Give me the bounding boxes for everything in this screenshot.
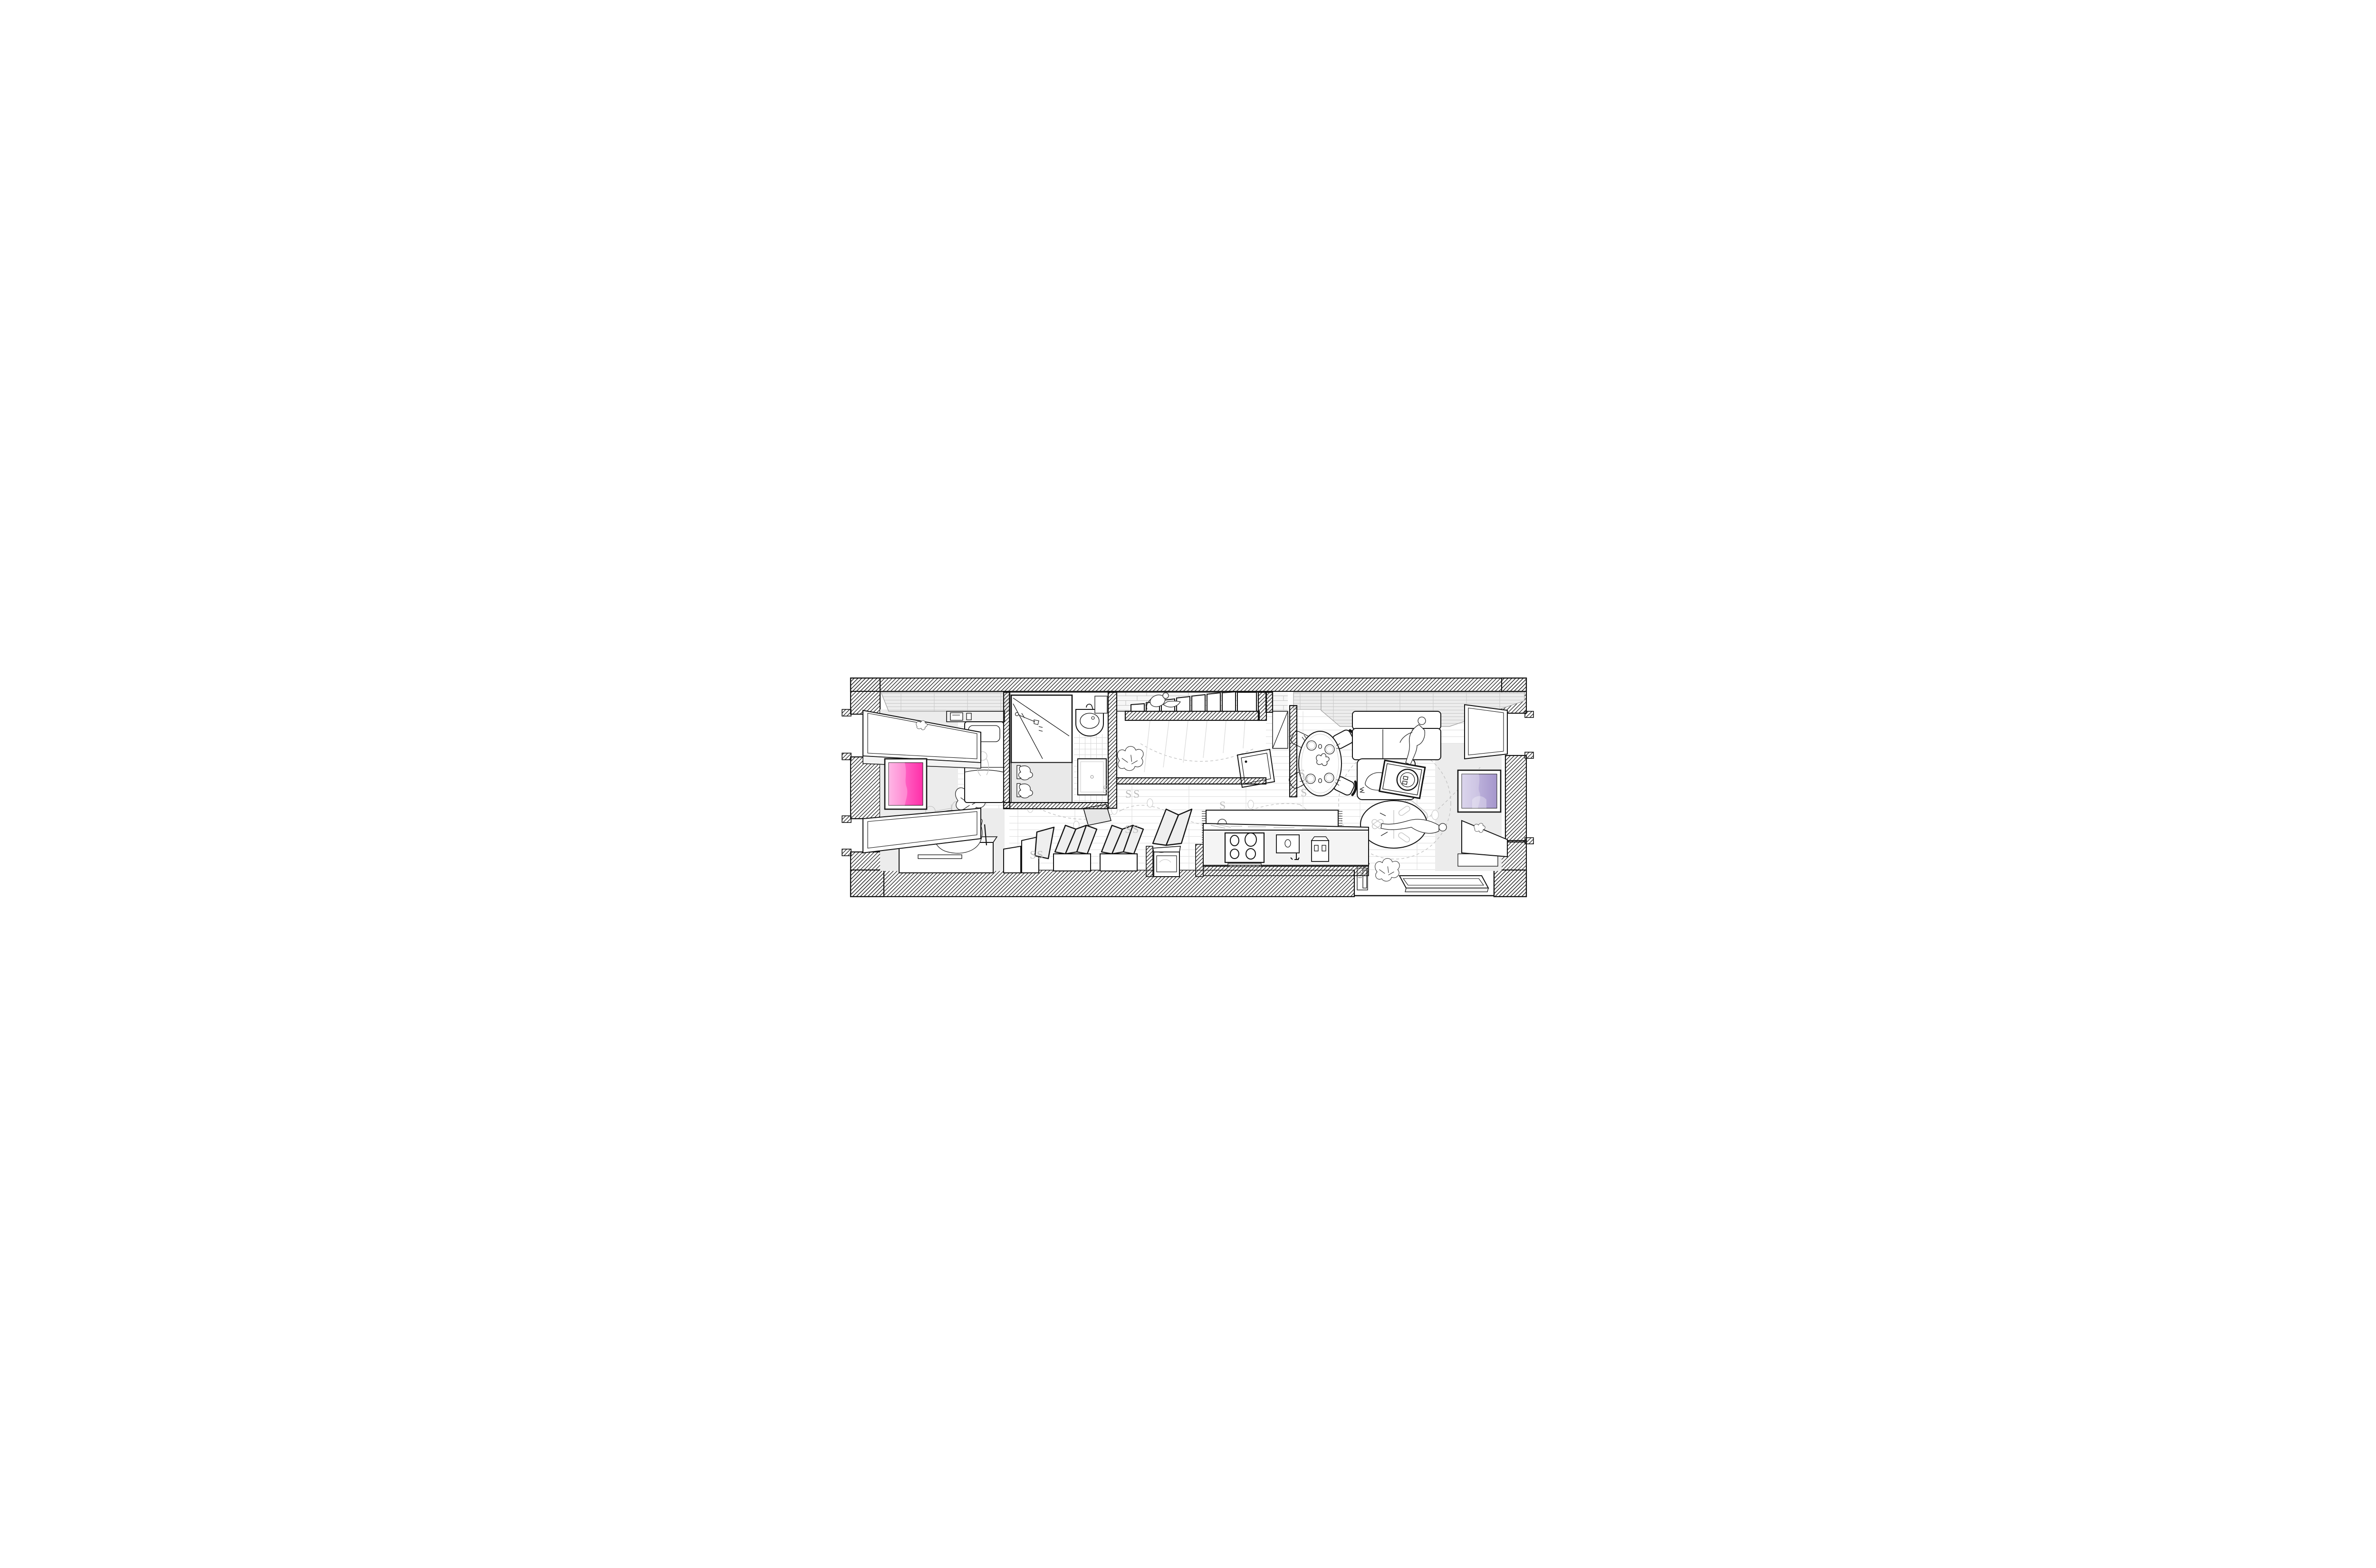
window-tab — [842, 753, 851, 760]
mirror-cabinet — [1095, 696, 1107, 713]
stair-newel — [1258, 692, 1266, 720]
drawer-slot — [918, 855, 962, 859]
bathroom-left-wall — [1004, 692, 1010, 808]
floor-plan-stage: SSSSSSSSSSS — [817, 544, 1559, 1024]
bathroom-bottom-wall — [1004, 803, 1108, 809]
door-jamb — [1266, 692, 1273, 712]
wall-left-pier-mid — [851, 757, 880, 819]
dining-ceiling — [1293, 692, 1321, 709]
pink-artwork — [885, 759, 927, 809]
low-platform — [1399, 876, 1488, 892]
floor-letter-s: S — [1037, 849, 1043, 861]
purple-artwork — [1458, 770, 1501, 812]
step-bench — [1004, 846, 1021, 873]
dining-pier — [1290, 706, 1297, 797]
floor-letter-s: S — [1301, 787, 1307, 799]
cooktop-icon — [1225, 833, 1264, 867]
window-tab — [1525, 838, 1533, 844]
vanity-cabinet — [1011, 695, 1072, 763]
wall-right-pier-mid — [1505, 755, 1526, 842]
floor-plan-canvas: SSSSSSSSSSS — [817, 544, 1559, 1024]
floor-letter-s: S — [1125, 823, 1131, 836]
floor-letter-s: S — [1132, 823, 1139, 836]
window-tab — [842, 849, 851, 856]
kitchen-island — [1203, 823, 1369, 867]
window-tab — [842, 816, 851, 822]
floor-letter-s: S — [1133, 788, 1140, 801]
espresso-machine-icon — [1312, 837, 1329, 861]
floor-letter-s: S — [1102, 784, 1109, 796]
pink-artwork-curve — [889, 763, 907, 805]
freestanding-cooker — [1153, 846, 1180, 877]
wall-left-pier-top — [851, 678, 880, 714]
floor-letter-s: S — [1030, 849, 1036, 861]
island-base — [1203, 865, 1369, 876]
window-tab — [842, 709, 851, 716]
floor-letter-s: S — [1219, 800, 1226, 812]
wall-top — [851, 678, 1526, 691]
shower-tray — [1078, 759, 1106, 795]
door-handle — [1245, 761, 1247, 763]
phone-dock-icon — [967, 713, 971, 720]
stair-corridor-wall — [1117, 778, 1266, 784]
window-bay-right-top — [1465, 705, 1507, 759]
washing-machine-icon — [1380, 760, 1425, 798]
kitchen-pier — [1196, 844, 1203, 877]
stair-guard-band — [1125, 711, 1259, 720]
wall-control-panel — [950, 713, 963, 720]
window-tab — [1525, 711, 1533, 717]
bathroom-right-wall — [1108, 692, 1117, 808]
window-tab — [1525, 752, 1533, 758]
kitchen-pier — [1146, 846, 1153, 877]
floor-letter-s: S — [1303, 774, 1309, 787]
floor-letter-s: S — [1125, 788, 1131, 801]
wall-bottom-right — [1494, 870, 1526, 897]
